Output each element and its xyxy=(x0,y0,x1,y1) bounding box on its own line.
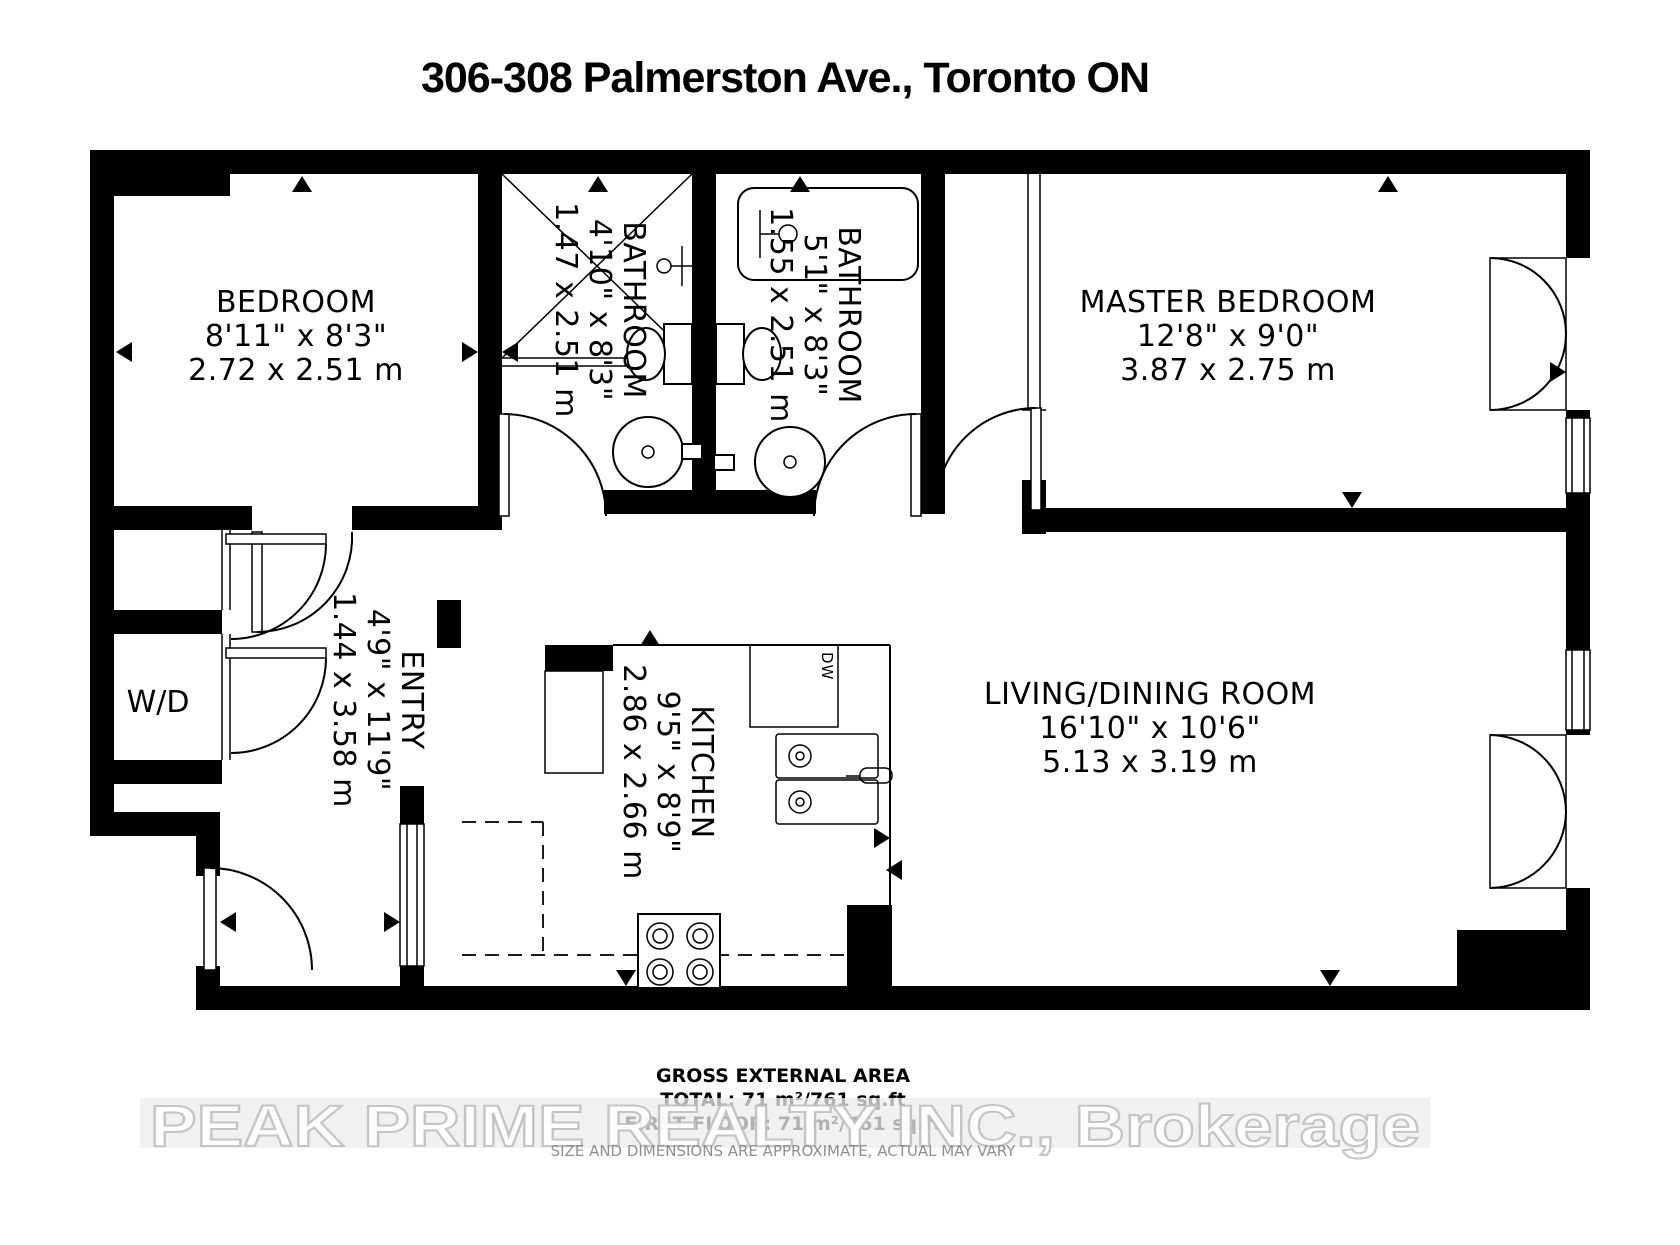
wall xyxy=(1566,150,1590,258)
wall xyxy=(1566,888,1590,1010)
dishwasher-label-group: DW xyxy=(818,652,836,680)
room-bathroom1: BATHROOM 4'10" x 8'3" 1.47 x 2.51 m xyxy=(548,202,651,418)
wall xyxy=(90,150,1590,174)
wall xyxy=(400,966,424,1010)
wall xyxy=(847,905,892,986)
room-dim-imperial: 16'10" x 10'6" xyxy=(1039,711,1261,746)
room-dim-imperial: 4'10" x 8'3" xyxy=(582,219,617,401)
room-dim-metric: 2.86 x 2.66 m xyxy=(616,664,651,880)
room-dim-metric: 1.44 x 3.58 m xyxy=(326,592,361,808)
page-title: 306-308 Palmerston Ave., Toronto ON xyxy=(421,54,1149,102)
room-dim-imperial: 9'5" x 8'9" xyxy=(650,691,685,854)
stove xyxy=(638,914,720,988)
disclaimer: SIZE AND DIMENSIONS ARE APPROXIMATE, ACT… xyxy=(551,1142,1017,1160)
room-dim-imperial: 12'8" x 9'0" xyxy=(1137,319,1319,354)
room-name: BEDROOM xyxy=(216,285,376,320)
wall xyxy=(437,600,461,648)
wall xyxy=(921,174,945,514)
wall xyxy=(90,150,114,836)
room-dim-metric: 3.87 x 2.75 m xyxy=(1120,353,1336,388)
room-name: BATHROOM xyxy=(831,226,866,404)
room-name: ENTRY xyxy=(394,650,429,750)
gross-area-heading: GROSS EXTERNAL AREA xyxy=(656,1065,910,1087)
floor-plan-page: 306-308 Palmerston Ave., Toronto ON xyxy=(0,0,1680,1245)
wall xyxy=(545,645,613,671)
room-dim-imperial: 8'11" x 8'3" xyxy=(205,319,387,354)
wall xyxy=(1566,410,1590,418)
wall xyxy=(352,506,502,530)
room-bedroom: BEDROOM 8'11" x 8'3" 2.72 x 2.51 m xyxy=(188,285,404,388)
wall xyxy=(692,174,716,514)
room-dim-metric: 2.72 x 2.51 m xyxy=(188,353,404,388)
room-name: LIVING/DINING ROOM xyxy=(984,677,1316,712)
floor-plan-drawing: 306-308 Palmerston Ave., Toronto ON xyxy=(0,0,1680,1245)
dishwasher-label: DW xyxy=(818,652,836,680)
room-dim-imperial: 4'9" x 11'9" xyxy=(360,609,395,791)
wall xyxy=(90,506,252,530)
room-dim-metric: 1.55 x 2.51 m xyxy=(763,207,798,423)
wall xyxy=(90,760,222,784)
washer-dryer-label: W/D xyxy=(127,685,190,720)
room-name: KITCHEN xyxy=(684,705,719,839)
wall xyxy=(400,786,424,824)
room-name: MASTER BEDROOM xyxy=(1080,285,1377,320)
room-dim-metric: 5.13 x 3.19 m xyxy=(1042,745,1258,780)
wall xyxy=(90,812,220,836)
room-dim-imperial: 5'1" x 8'3" xyxy=(797,234,832,397)
room-dim-metric: 1.47 x 2.51 m xyxy=(548,202,583,418)
wall xyxy=(1046,508,1590,532)
room-name: BATHROOM xyxy=(616,221,651,399)
wall xyxy=(90,610,222,634)
room-bathroom2: BATHROOM 5'1" x 8'3" 1.55 x 2.51 m xyxy=(763,207,866,423)
